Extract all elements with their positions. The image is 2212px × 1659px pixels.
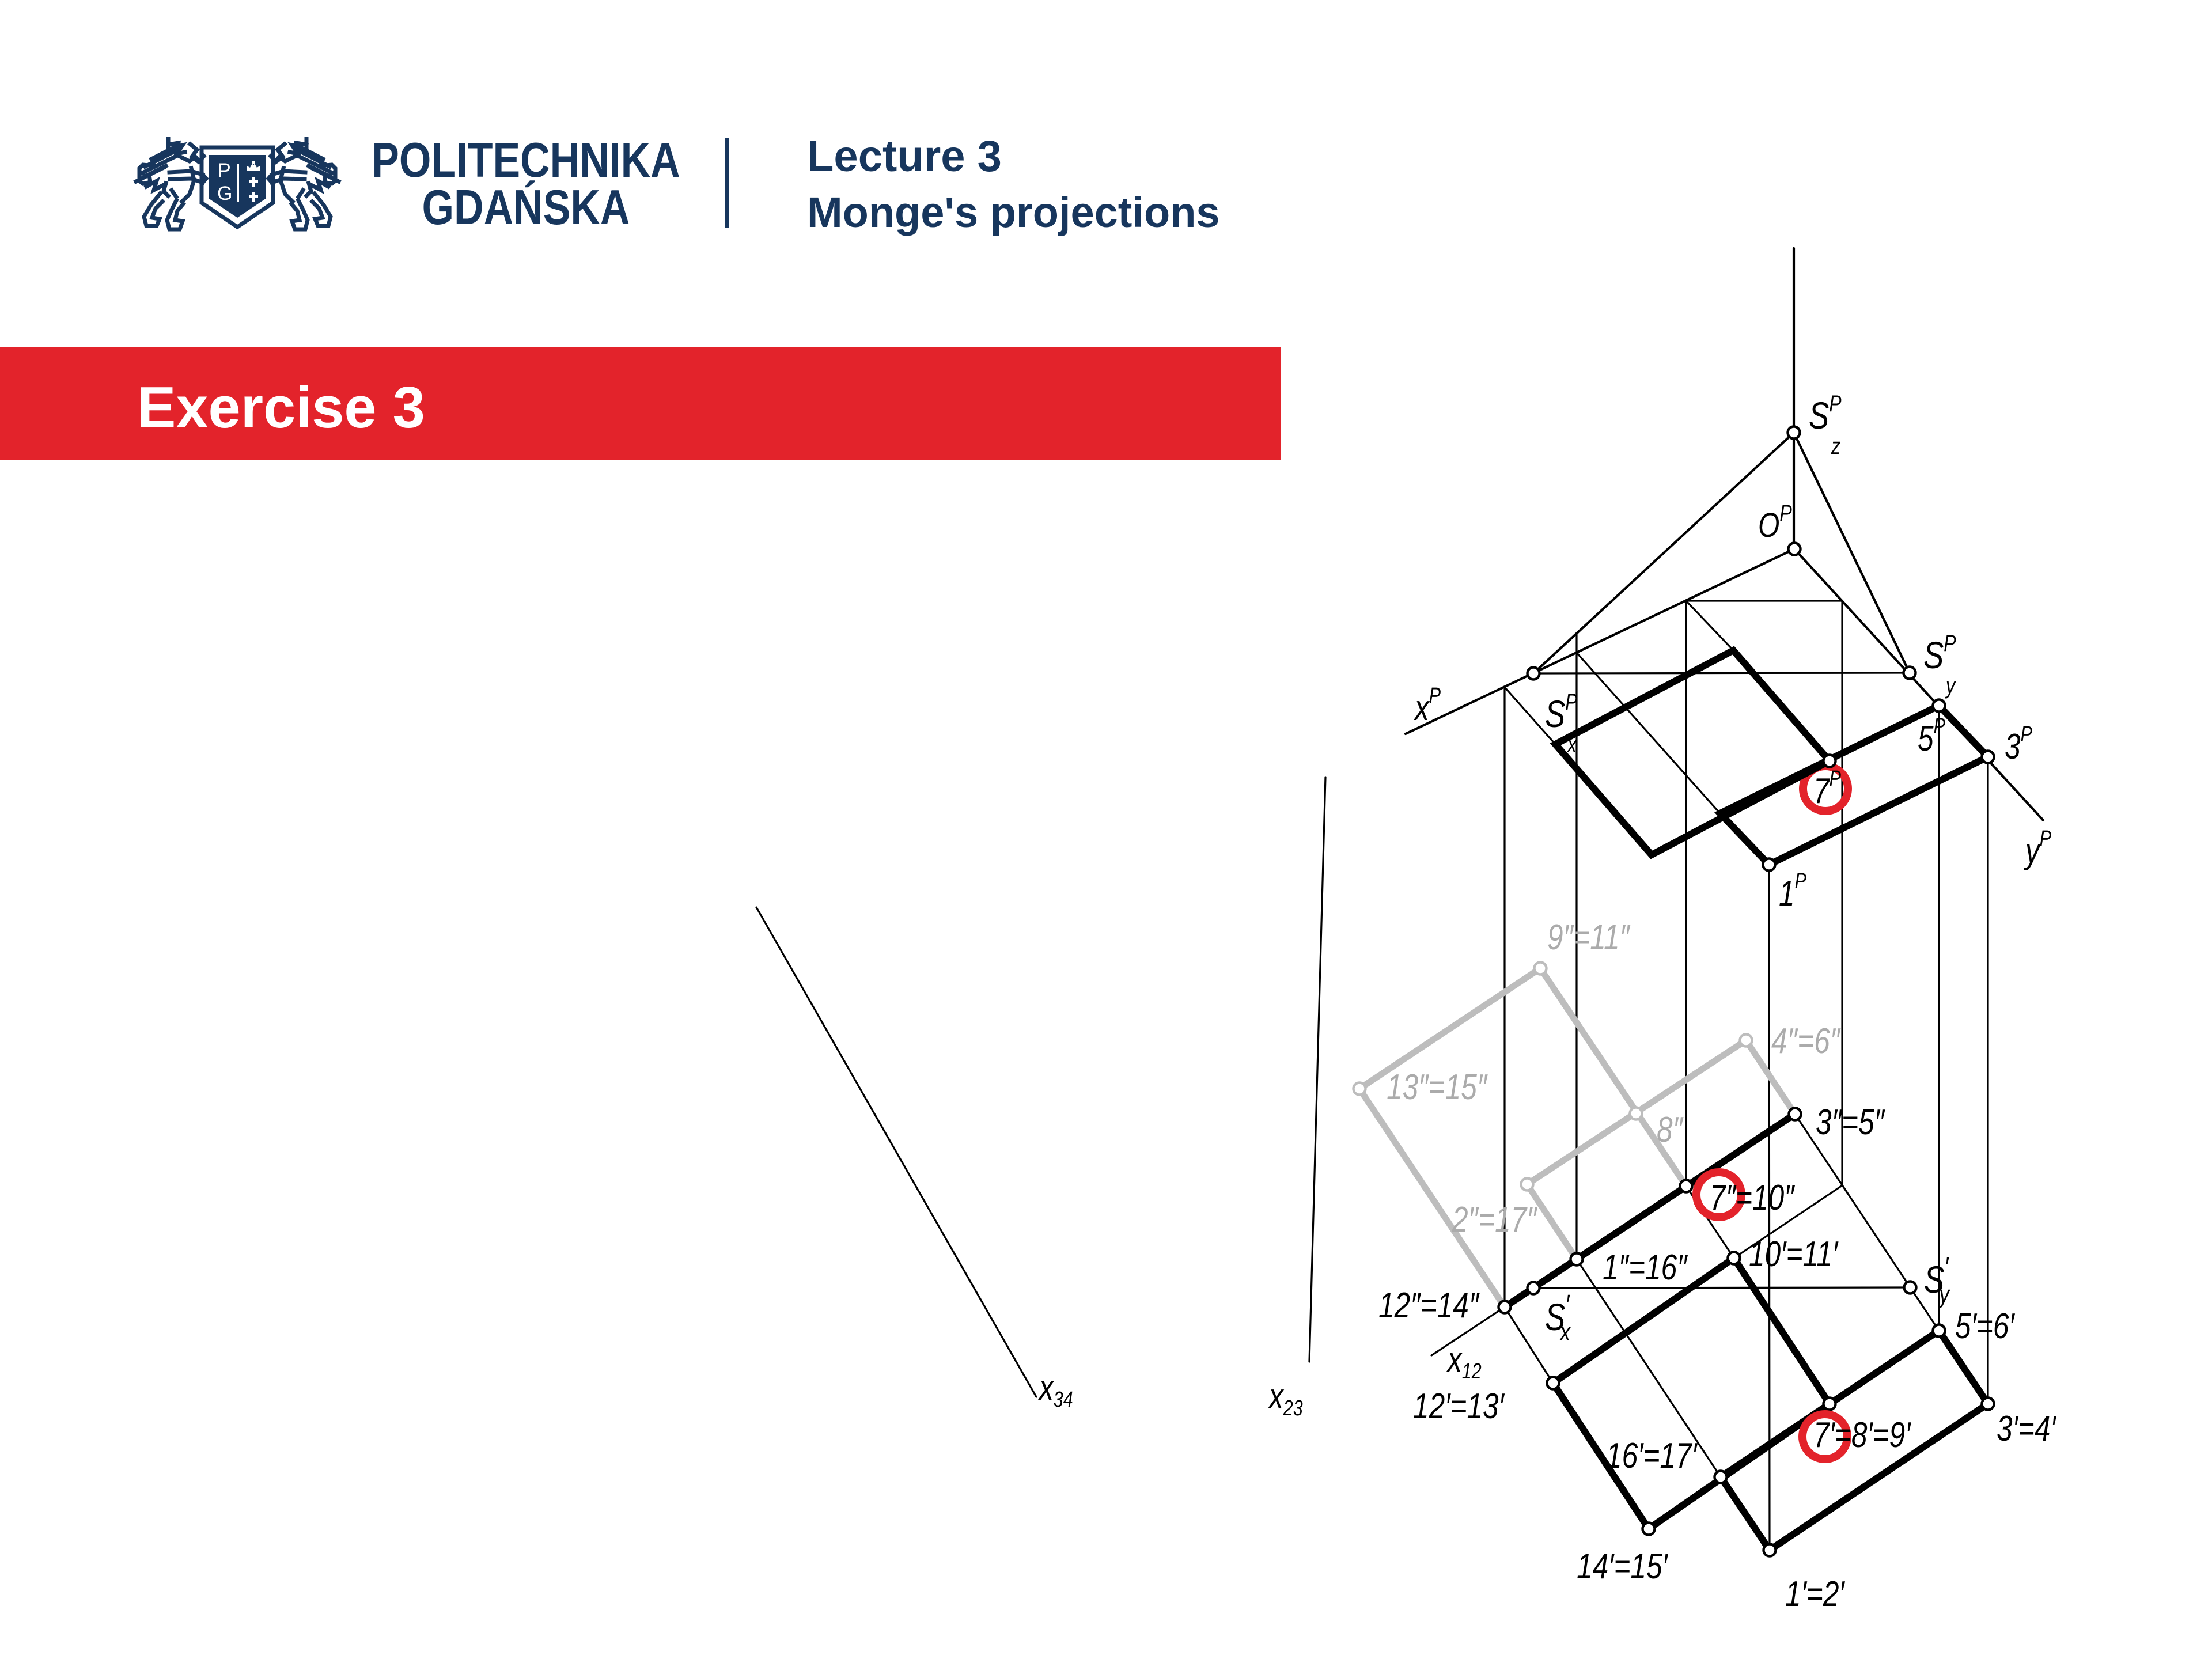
svg-text:10′=11′: 10′=11′ [1749,1234,1839,1274]
svg-text:16′=17′: 16′=17′ [1606,1435,1698,1476]
svg-text:1″=16″: 1″=16″ [1603,1247,1688,1287]
svg-text:Lecture 3: Lecture 3 [807,132,1002,181]
svg-text:2″=17″: 2″=17″ [1452,1199,1538,1240]
svg-text:Monge's projections: Monge's projections [807,188,1220,236]
svg-text:3″=5″: 3″=5″ [1816,1102,1885,1142]
svg-text:GDAŃSKA: GDAŃSKA [422,180,630,234]
svg-text:S′x: S′x [1545,1290,1571,1346]
svg-text:POLITECHNIKA: POLITECHNIKA [372,132,680,187]
svg-text:3′=4′: 3′=4′ [1997,1408,2057,1449]
svg-text:Exercise 3: Exercise 3 [137,376,425,440]
svg-text:5′=6′: 5′=6′ [1955,1306,2016,1346]
svg-text:13″=15″: 13″=15″ [1387,1067,1488,1107]
svg-text:1′=2′: 1′=2′ [1785,1574,1846,1614]
svg-text:9″=11″: 9″=11″ [1547,917,1631,957]
svg-text:8″: 8″ [1657,1109,1684,1150]
svg-text:7″=10″: 7″=10″ [1710,1177,1796,1218]
svg-text:7′=8′=9′: 7′=8′=9′ [1813,1415,1912,1455]
svg-text:4″=6″: 4″=6″ [1771,1021,1841,1061]
svg-text:12′=13′: 12′=13′ [1413,1386,1505,1426]
svg-text:P: P [218,160,231,181]
svg-text:14′=15′: 14′=15′ [1577,1546,1669,1586]
svg-text:S′y: S′y [1924,1252,1950,1309]
svg-text:G: G [217,183,232,204]
svg-text:12″=14″: 12″=14″ [1378,1285,1480,1325]
